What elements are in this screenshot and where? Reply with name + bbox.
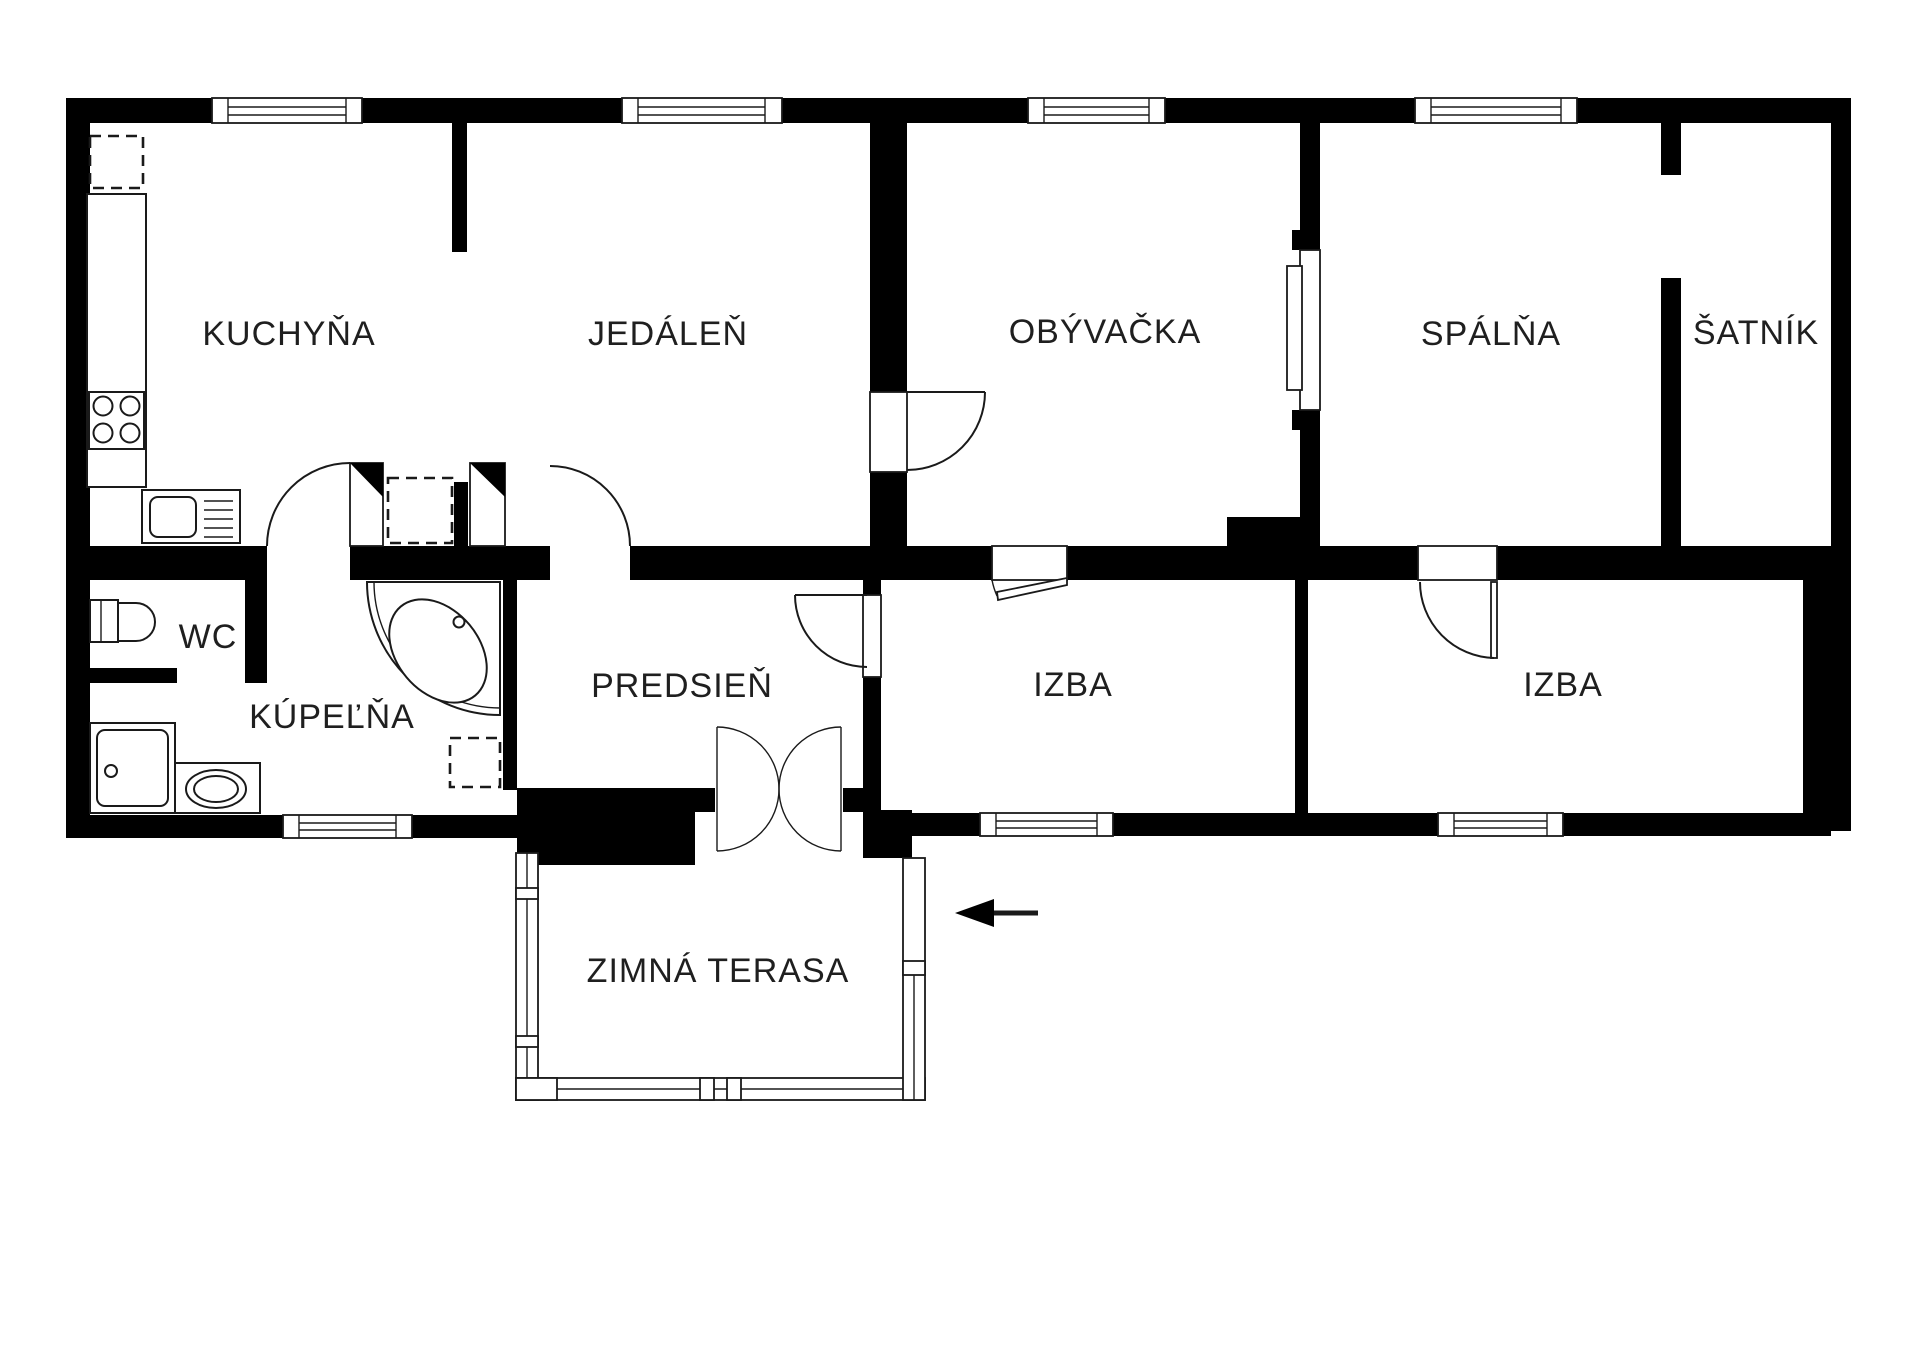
label-hall: PREDSIEŇ [591,667,773,705]
dining-hall-door-arc [550,466,630,546]
label-kitchen: KUCHYŇA [202,315,375,353]
room-right-door-arc [1420,582,1494,658]
window-room-left [980,813,1113,836]
wall-right-lower [1803,546,1851,831]
opening-hall-room-door [863,595,881,677]
wall-living-bedroom-upper [1300,123,1320,250]
wall-kitchen-dining-stub-bottom [454,482,468,547]
fridge-icon [90,136,143,188]
window-bedroom [1415,98,1577,123]
label-bedroom: SPÁLŇA [1421,315,1561,353]
room-left-door-arc [992,580,997,596]
terrace-entry-door [904,859,924,961]
label-dining: JEDÁLEŇ [588,315,748,353]
opening-bedroom-sliding [1300,250,1320,410]
opening-kitchen-door [267,546,350,580]
room-right-door-leaf [1491,582,1497,658]
wall-living-bedroom-lower [1300,410,1320,547]
window-bathroom [283,815,412,838]
wall-dining-living-upper [870,123,907,392]
wall-dining-living-lower [870,472,907,548]
bedroom-sliding-panel [1287,266,1302,390]
boiler-dashed-icon [450,738,500,787]
wall-kitchen-dining-stub-top [452,123,467,252]
floor-plan-page: KUCHYŇA JEDÁLEŇ OBÝVAČKA SPÁLŇA ŠATNÍK W… [0,0,1920,1357]
washing-machine-icon [175,763,260,813]
wall-bedroom-closet-lower [1661,278,1681,580]
walls [66,98,1851,865]
wall-wc-bottom [87,668,177,683]
opening-room-right-door [1418,546,1497,580]
kitchen-door-arc [267,463,350,546]
wall-living-bedroom-jamb-top [1292,230,1302,250]
label-terrace: ZIMNÁ TERASA [587,952,850,990]
label-living: OBÝVAČKA [1009,313,1202,351]
label-room-left: IZBA [1033,666,1113,704]
shower-icon [90,723,175,813]
wall-hall-bottom-mass [517,812,695,865]
opening-living-door [870,392,907,472]
entrance-arrow-icon [955,899,1038,927]
wall-bath-hall [503,577,517,790]
label-bathroom: KÚPEĽŇA [249,698,415,736]
wall-room-room [1295,580,1308,813]
hall-door-arc [795,595,867,667]
wall-wc-right [245,577,267,683]
wall-entry-step-block [863,810,912,858]
cabinet-dashed-icon [388,478,452,543]
floor-plan-svg: KUCHYŇA JEDÁLEŇ OBÝVAČKA SPÁLŇA ŠATNÍK W… [0,0,1920,1357]
wall-living-notch [1227,517,1300,548]
label-room-right: IZBA [1523,666,1603,704]
sink-icon [142,490,240,543]
wall-right-upper [1831,98,1851,582]
window-dining [622,98,782,123]
label-wc: WC [179,618,238,656]
room-left-door-leaf [997,578,1067,600]
wall-bedroom-closet-upper [1661,115,1681,175]
stove-icon [89,392,144,449]
terrace-corner-post [516,1078,557,1100]
wall-living-bedroom-jamb-bottom [1292,410,1302,430]
window-kitchen [212,98,362,123]
window-living [1028,98,1165,123]
label-closet: ŠATNÍK [1693,314,1819,352]
opening-room-left-door [992,546,1067,580]
toilet-icon [90,600,155,642]
opening-dining-hall-door [550,546,630,580]
window-room-right [1438,813,1563,836]
living-door-arc [907,392,985,470]
